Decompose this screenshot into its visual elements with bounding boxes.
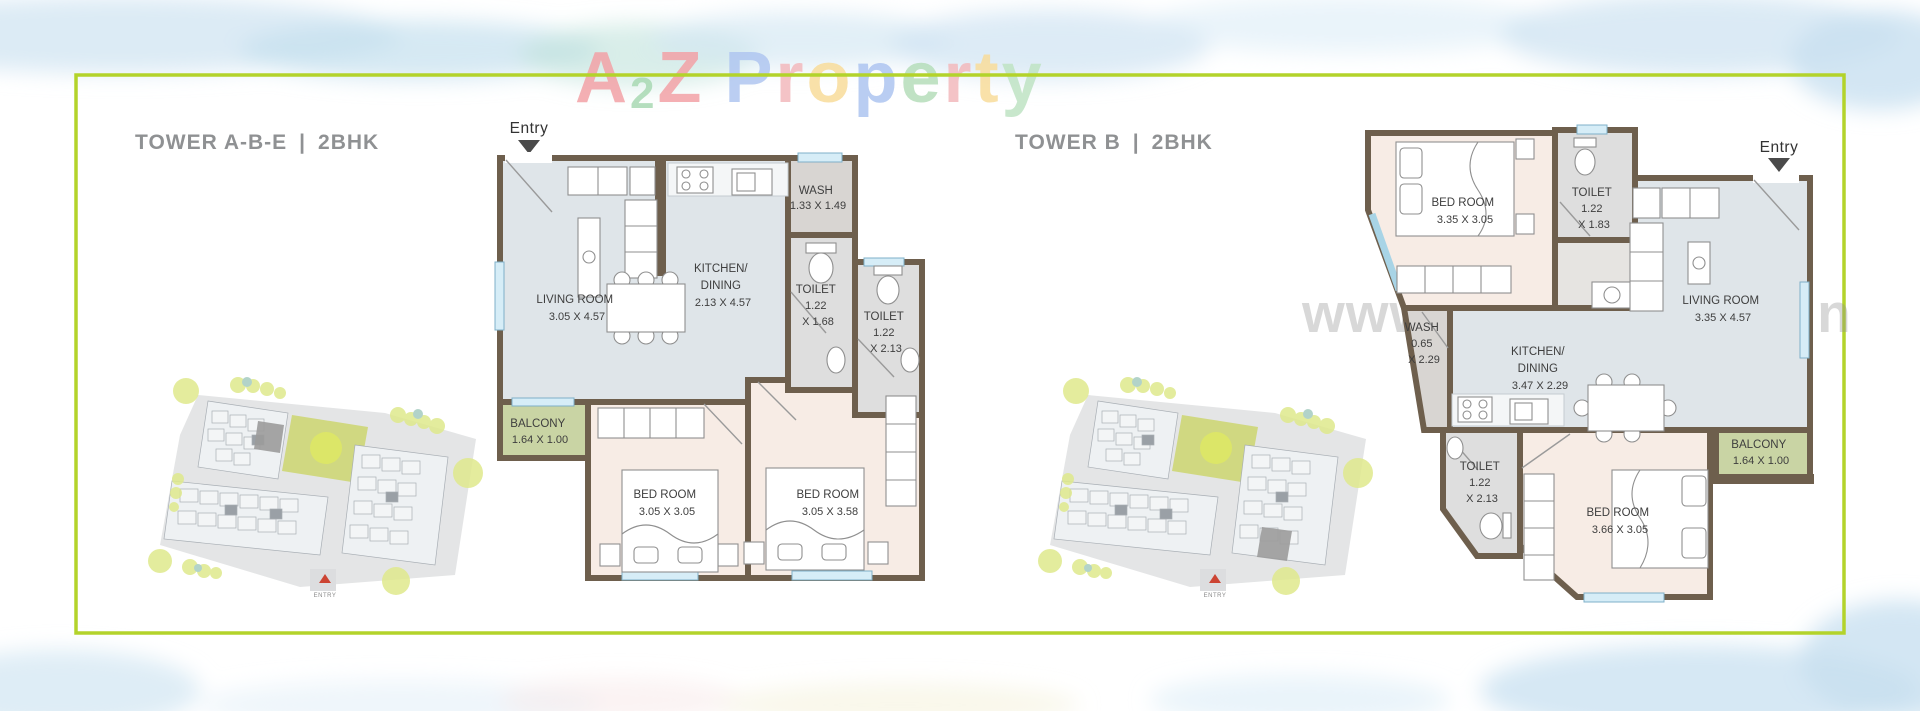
right-kitchen-furniture — [1452, 394, 1564, 426]
washbasin-icon — [901, 348, 919, 372]
right-kitchen-label: KITCHEN/ DINING 3.47 X 2.29 — [1511, 342, 1569, 392]
sofa-icon — [1630, 223, 1663, 311]
left-toilet2-window — [864, 258, 904, 266]
right-site-highlighted-unit — [1257, 527, 1292, 561]
right-living-window — [1800, 282, 1809, 358]
sofa-icon — [625, 200, 657, 278]
wardrobe-icon — [1397, 266, 1511, 293]
left-entry-arrow-icon — [518, 140, 540, 154]
toilet-bowl-icon — [877, 276, 899, 304]
left-balcony-room — [500, 402, 588, 458]
left-site-plan — [148, 377, 483, 599]
pillow-icon — [822, 544, 846, 560]
pillow-icon — [1682, 528, 1706, 558]
pillow-icon — [1400, 184, 1422, 214]
pillow-icon — [1400, 148, 1422, 178]
right-entry-opening — [1753, 172, 1799, 183]
nightstand-icon — [868, 542, 888, 564]
left-plan-title: TOWER A-B-E|2BHK — [135, 131, 379, 154]
left-entry-opening — [505, 152, 552, 163]
wardrobe-icon — [598, 408, 704, 438]
tv-console-icon — [1688, 242, 1710, 284]
left-site-highlighted-unit — [254, 421, 284, 453]
toilet-bowl-icon — [1480, 513, 1502, 539]
right-site-plan — [1038, 377, 1373, 599]
left-livingroom-window — [495, 262, 504, 330]
stove-icon — [677, 167, 713, 193]
right-toilet1-window — [1577, 125, 1607, 134]
wardrobe-icon — [886, 396, 916, 506]
pillow-icon — [778, 544, 802, 560]
left-balcony-slider-window — [512, 398, 574, 406]
nightstand-icon — [718, 544, 738, 566]
dining-table-icon — [1588, 385, 1664, 431]
pillow-icon — [678, 547, 702, 563]
left-bedroom2-window — [792, 571, 872, 580]
wardrobe-icon — [1524, 474, 1554, 580]
right-balcony-room — [1716, 430, 1810, 477]
left-dining-set — [607, 272, 685, 344]
brochure-canvas: ENTRY A2ZProperty www.A2ZProperty.in TOW… — [0, 0, 1920, 711]
left-unit: TOWER A-B-E|2BHK Entry — [135, 120, 922, 599]
washbasin-icon — [827, 347, 845, 373]
toilet-tank-icon — [874, 266, 902, 275]
left-kitchen-furniture — [668, 163, 788, 196]
washbasin-icon — [1447, 437, 1463, 459]
toilet-tank-icon — [806, 243, 836, 253]
right-entry-arrow-icon — [1768, 158, 1790, 172]
left-kitchen-label: KITCHEN/ DINING 2.13 X 4.57 — [694, 259, 752, 309]
toilet-tank-icon — [1503, 513, 1511, 538]
side-table-icon — [630, 167, 655, 195]
nightstand-icon — [1516, 214, 1534, 234]
right-plan-title: TOWER B|2BHK — [1015, 131, 1213, 154]
left-entry-label: Entry — [510, 120, 549, 137]
pillow-icon — [1682, 476, 1706, 506]
nightstand-icon — [1516, 139, 1534, 159]
floorplan-brochure: ENTRY A2ZProperty www.A2ZProperty.in TOW… — [0, 0, 1920, 711]
stove-icon — [1458, 397, 1492, 422]
tv-console-icon — [578, 218, 600, 297]
nightstand-icon — [744, 542, 764, 564]
toilet-tank-icon — [1574, 138, 1596, 147]
dining-table-icon — [607, 284, 685, 332]
pillow-icon — [634, 547, 658, 563]
toilet-bowl-icon — [809, 253, 833, 283]
left-wash-window — [798, 153, 842, 162]
right-balcony-outer-wall — [1712, 474, 1814, 484]
side-table-icon — [1633, 188, 1660, 218]
vanity-counter — [1592, 282, 1632, 308]
right-entry-label: Entry — [1760, 139, 1799, 156]
nightstand-icon — [600, 544, 620, 566]
right-unit: TOWER B|2BHK Entry — [1015, 125, 1814, 602]
right-bedroom2-window — [1584, 593, 1664, 602]
toilet-bowl-icon — [1575, 149, 1595, 175]
